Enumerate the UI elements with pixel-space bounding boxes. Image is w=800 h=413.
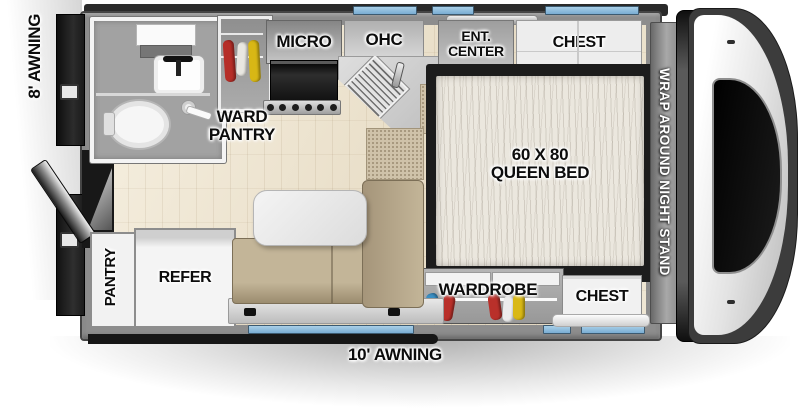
bed-label: 60 X 80 QUEEN BED (436, 146, 644, 183)
dinette-table (253, 190, 367, 246)
bed-label-line2: QUEEN BED (491, 163, 589, 182)
ward-pantry-label: WARD PANTRY (196, 108, 288, 145)
counter-speckle-lower (366, 128, 424, 180)
night-stand-label: WRAP AROUND NIGHT STAND (656, 28, 672, 316)
entertainment-center: ENT. CENTER (438, 20, 514, 68)
range-oven (270, 60, 338, 102)
range-knob (317, 104, 324, 111)
toilet (107, 99, 171, 150)
awning-left-label: 8' AWNING (26, 8, 44, 104)
overhead-cabinet: OHC (344, 20, 424, 60)
cab-trim-mark-top (727, 40, 735, 44)
chest-bottom-tray (552, 314, 650, 327)
toilet-hinge (103, 112, 115, 136)
refrigerator: REFER (134, 228, 236, 328)
range-knob (305, 104, 312, 111)
refer-label: REFER (159, 269, 212, 286)
window-accent-top-3 (545, 6, 639, 15)
floorplan-scene: MICRO OHC ENT. CENTER CHEST 60 X 80 QUEE… (0, 0, 800, 413)
ward-shelf-line (221, 33, 263, 35)
sofa-back (362, 180, 424, 308)
ohc-label: OHC (366, 31, 403, 49)
microwave-cabinet: MICRO (266, 20, 342, 64)
ward-pantry-cabinet (218, 16, 272, 112)
ent-center-label-line1: ENT. (461, 29, 490, 44)
ent-center-label-line2: CENTER (448, 44, 504, 59)
chest-top-divider (577, 21, 579, 65)
bathroom-cabinet (136, 24, 196, 46)
ward-pantry-label-line2: PANTRY (209, 125, 275, 144)
window-accent-top-1 (353, 6, 417, 15)
hanging-clothes-red (223, 40, 237, 83)
exterior-panel-top (56, 14, 85, 146)
ward-pantry-label-line1: WARD (217, 107, 268, 126)
micro-label: MICRO (276, 33, 331, 51)
hanging-clothes-white (236, 42, 249, 77)
chest-bottom-label: CHEST (576, 288, 629, 305)
sofa-foot-right (388, 308, 400, 316)
door-latch-top (60, 84, 79, 100)
cab-trim-mark-bottom (727, 300, 735, 304)
hanging-clothes-yellow (248, 40, 261, 83)
chest-bottom-cabinet: CHEST (562, 275, 642, 319)
sink-faucet-spout (176, 60, 181, 76)
awning-bottom-label: 10' AWNING (330, 346, 460, 364)
wardrobe-label: WARDROBE (425, 281, 551, 299)
range-knob (330, 104, 337, 111)
range-knob (292, 104, 299, 111)
window-accent-bottom-1 (248, 325, 414, 334)
window-accent-top-2 (432, 6, 474, 15)
chest-top-cabinet: CHEST (516, 20, 642, 66)
sofa-cushion-seam (331, 239, 333, 303)
sofa-foot-left (244, 308, 256, 316)
chest-top-drawer-line (517, 51, 641, 52)
awning-tube (88, 334, 438, 344)
bathroom-divider (96, 93, 210, 96)
bed-label-line1: 60 X 80 (512, 145, 569, 164)
pantry-label: PANTRY (103, 237, 119, 317)
